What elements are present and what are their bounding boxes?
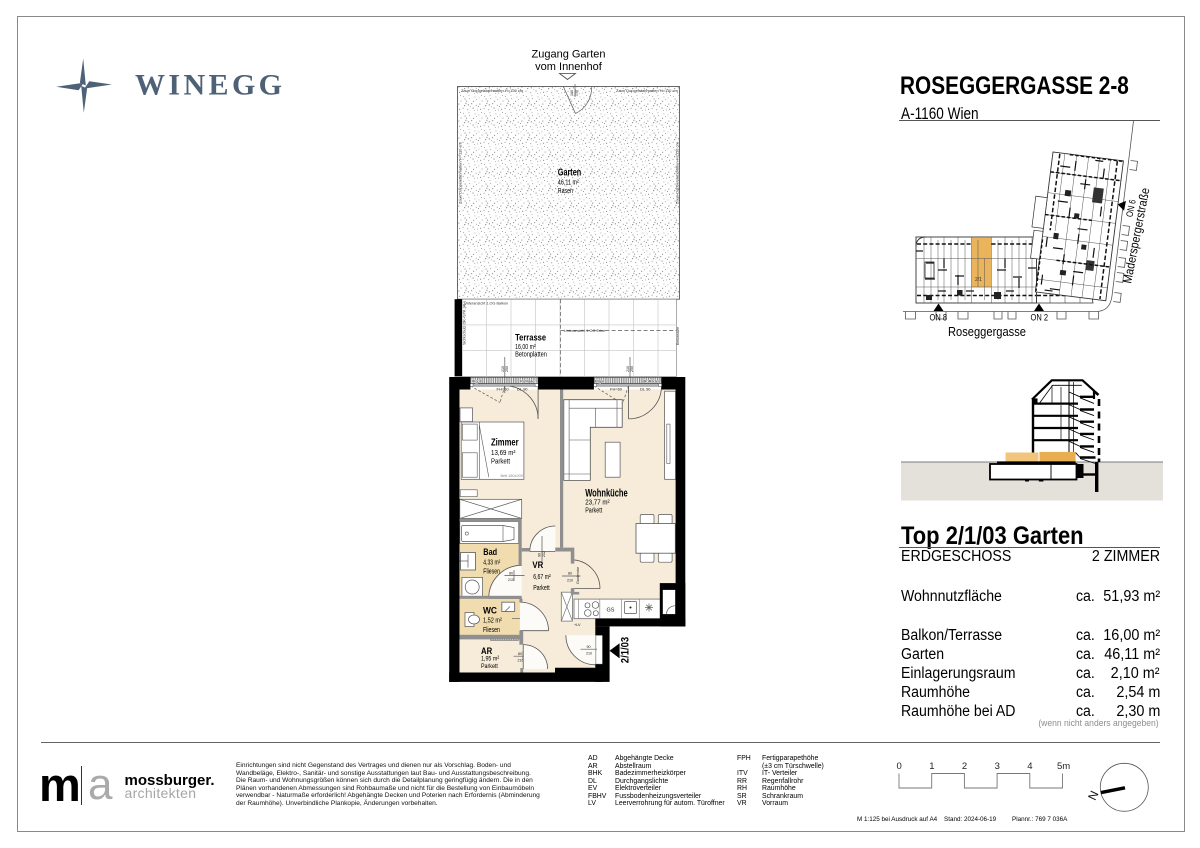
- svg-text:Zaun Doppelstabmatten H=110 cm: Zaun Doppelstabmatten H=110 cm: [675, 141, 680, 204]
- svg-text:+LV: +LV: [574, 623, 581, 627]
- svg-text:Bad: Bad: [483, 547, 497, 558]
- svg-text:210: 210: [567, 579, 573, 583]
- svg-text:Rigol: Rigol: [595, 378, 604, 383]
- svg-text:46,11 m²: 46,11 m²: [558, 180, 580, 187]
- svg-text:N: N: [1085, 789, 1101, 803]
- svg-text:Parkett: Parkett: [491, 458, 510, 465]
- svg-text:Parkett: Parkett: [481, 663, 498, 670]
- svg-text:FH=60: FH=60: [497, 387, 510, 392]
- svg-text:Terrasse: Terrasse: [515, 332, 546, 342]
- svg-text:Betonplatten: Betonplatten: [515, 352, 547, 359]
- svg-text:Rollladen: Rollladen: [520, 378, 537, 383]
- svg-text:2/1: 2/1: [975, 277, 982, 283]
- svg-text:GS: GS: [607, 608, 615, 614]
- svg-text:80: 80: [518, 652, 522, 656]
- svg-text:Betonstufe: Betonstufe: [676, 327, 680, 345]
- svg-text:Rasen: Rasen: [558, 188, 573, 195]
- svg-text:ON 2: ON 2: [1031, 313, 1049, 324]
- svg-text:1,95 m²: 1,95 m²: [481, 656, 500, 663]
- svg-text:16,00 m²: 16,00 m²: [515, 344, 536, 351]
- svg-text:210: 210: [586, 652, 592, 656]
- svg-text:vom Innenhof: vom Innenhof: [535, 61, 603, 73]
- svg-text:2/1/03: 2/1/03: [620, 637, 632, 663]
- svg-text:DL 90: DL 90: [640, 387, 651, 392]
- svg-text:2: 2: [962, 761, 967, 772]
- svg-text:Sichtschutz OK+STK (AL): Sichtschutz OK+STK (AL): [463, 300, 467, 345]
- svg-text:100: 100: [570, 90, 574, 96]
- svg-text:Rigol: Rigol: [472, 378, 481, 383]
- svg-text:Fliesen: Fliesen: [483, 569, 500, 576]
- svg-text:80: 80: [568, 572, 572, 576]
- svg-text:6,67 m²: 6,67 m²: [533, 574, 551, 581]
- svg-text:90: 90: [587, 645, 591, 649]
- svg-text:Zaun Doppelstabmatten H=110 cm: Zaun Doppelstabmatten H=110 cm: [458, 141, 463, 204]
- svg-text:Parkett: Parkett: [585, 507, 602, 514]
- svg-text:Fliesen: Fliesen: [483, 627, 500, 634]
- svg-text:212: 212: [542, 551, 546, 557]
- svg-text:WINEGG: WINEGG: [135, 69, 285, 102]
- svg-text:Garten: Garten: [558, 167, 581, 178]
- svg-text:Zaun Doppelstabmatten H=110 cm: Zaun Doppelstabmatten H=110 cm: [616, 88, 679, 93]
- svg-text:250: 250: [630, 366, 634, 372]
- svg-text:3: 3: [995, 761, 1000, 772]
- svg-text:210: 210: [508, 578, 514, 582]
- svg-text:Wohnküche: Wohnküche: [585, 487, 628, 499]
- svg-text:DL 90: DL 90: [517, 387, 528, 392]
- svg-text:FH=60: FH=60: [610, 387, 623, 392]
- svg-text:1,52 m²: 1,52 m²: [483, 618, 502, 625]
- svg-text:WC: WC: [483, 605, 497, 616]
- svg-text:5m: 5m: [1057, 761, 1070, 772]
- svg-text:Rollladen: Rollladen: [644, 378, 661, 383]
- svg-text:230: 230: [575, 90, 579, 96]
- svg-text:Unteransicht 1.OG Balkon: Unteransicht 1.OG Balkon: [464, 301, 508, 305]
- svg-text:Zugang Garten: Zugang Garten: [532, 49, 606, 61]
- svg-text:4: 4: [1027, 761, 1032, 772]
- svg-text:250: 250: [505, 366, 509, 372]
- svg-text:13,69 m²: 13,69 m²: [491, 450, 516, 457]
- svg-text:Garderobe: Garderobe: [576, 567, 580, 584]
- svg-text:Zaun Doppelstabmatten H=120 cm: Zaun Doppelstabmatten H=120 cm: [461, 88, 524, 93]
- svg-text:210: 210: [518, 659, 524, 663]
- svg-text:ON 8: ON 8: [930, 313, 948, 324]
- svg-text:0: 0: [897, 761, 902, 772]
- svg-text:Bett 180x200: Bett 180x200: [501, 474, 523, 478]
- svg-text:Zimmer: Zimmer: [491, 437, 519, 448]
- svg-text:80: 80: [509, 571, 513, 575]
- svg-text:Roseggergasse: Roseggergasse: [948, 325, 1026, 339]
- svg-text:Unteransicht 1.OG Erker: Unteransicht 1.OG Erker: [564, 329, 606, 333]
- svg-text:23,77 m²: 23,77 m²: [585, 500, 610, 507]
- svg-text:4,33 m²: 4,33 m²: [483, 560, 500, 567]
- svg-text:1: 1: [929, 761, 934, 772]
- svg-text:Parkett: Parkett: [533, 585, 550, 592]
